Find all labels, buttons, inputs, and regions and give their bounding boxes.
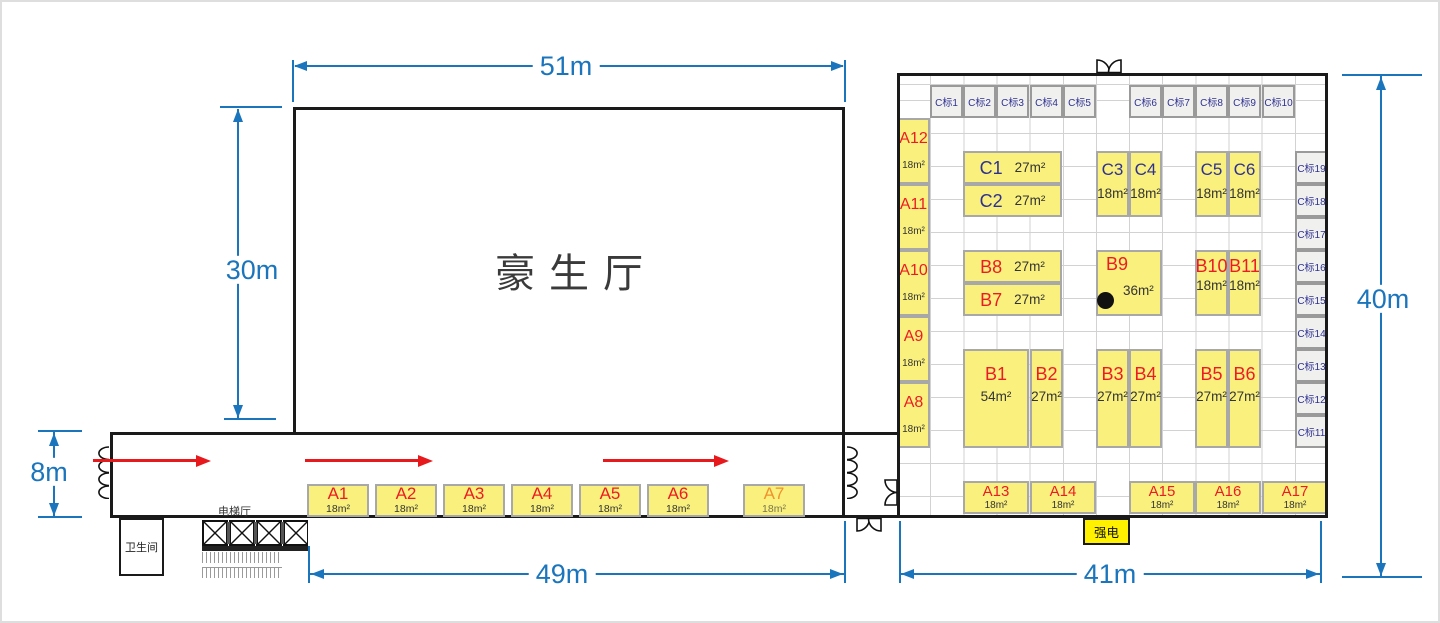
dim-arrowhead <box>233 109 243 122</box>
double-door-icon <box>1096 57 1122 73</box>
booth-area: 18m² <box>666 504 690 515</box>
dim-49m-tick-left <box>308 546 310 583</box>
booth-a1: A1 18m² <box>307 484 369 517</box>
booth-a3: A3 18m² <box>443 484 505 517</box>
booth-a7: A7 18m² <box>743 484 805 517</box>
hall-name: 豪生厅 <box>293 107 845 432</box>
dim-arrowhead <box>830 569 843 579</box>
booth-label: A1 <box>328 486 349 502</box>
restroom: 卫生间 <box>119 518 164 576</box>
door-swing-icon <box>846 446 860 499</box>
booth-a4: A4 18m² <box>511 484 573 517</box>
booth-a5: A5 18m² <box>579 484 641 517</box>
passage-divider-wall <box>842 432 845 518</box>
building-wall <box>897 73 1328 518</box>
double-door-icon <box>883 479 898 506</box>
elevator-lobby-label: 电梯厅 <box>218 503 251 519</box>
dim-arrowhead <box>1376 563 1386 576</box>
flow-arrow <box>603 459 715 462</box>
booth-label: A4 <box>532 486 553 502</box>
dim-arrowhead <box>831 61 844 71</box>
dim-arrowhead <box>311 569 324 579</box>
booth-label: A5 <box>600 486 621 502</box>
dim-8m-tick-bottom <box>38 516 82 518</box>
dim-arrowhead <box>49 503 59 516</box>
dim-arrowhead <box>901 569 914 579</box>
dim-8m-label: 8m <box>23 458 75 486</box>
dim-40m-line <box>1380 75 1382 578</box>
flow-arrow <box>305 459 419 462</box>
dim-49m-label: 49m <box>529 560 596 588</box>
booth-area: 18m² <box>762 504 786 515</box>
booth-label: A3 <box>464 486 485 502</box>
stairs-icon <box>202 552 282 578</box>
booth-label: A7 <box>764 486 785 502</box>
dim-arrowhead <box>1376 77 1386 90</box>
dim-51m-label: 51m <box>533 52 600 80</box>
booth-a6: A6 18m² <box>647 484 709 517</box>
booth-area: 18m² <box>598 504 622 515</box>
dim-40m-label: 40m <box>1350 285 1417 313</box>
power-box: 强电 <box>1083 518 1130 545</box>
dim-arrowhead <box>49 433 59 446</box>
dim-arrowhead <box>294 61 307 71</box>
dim-30m-label: 30m <box>219 256 286 284</box>
dim-41m-tick-right <box>1320 521 1322 583</box>
dim-40m-tick-bottom <box>1342 576 1422 578</box>
dim-49m-tick-right <box>844 521 846 583</box>
dim-41m-label: 41m <box>1077 560 1144 588</box>
booth-label: A6 <box>668 486 689 502</box>
booth-a2: A2 18m² <box>375 484 437 517</box>
dim-40m-tick-top <box>1342 74 1422 76</box>
stairs-mid-line <box>202 563 282 568</box>
flow-arrowhead <box>196 455 211 467</box>
power-label: 强电 <box>1094 522 1119 541</box>
dim-30m-tick-top <box>220 106 282 108</box>
dim-arrowhead <box>233 405 243 418</box>
booth-label: A2 <box>396 486 417 502</box>
floor-plan-canvas: 51m 30m 8m 49m 41m 40m 豪生厅 <box>0 0 1440 623</box>
dim-51m-tick-right <box>844 60 846 102</box>
double-door-icon <box>856 518 882 534</box>
booth-area: 18m² <box>462 504 486 515</box>
flow-arrowhead <box>418 455 433 467</box>
booth-area: 18m² <box>326 504 350 515</box>
flow-arrow <box>93 459 197 462</box>
flow-arrowhead <box>714 455 729 467</box>
booth-area: 18m² <box>530 504 554 515</box>
booth-area: 18m² <box>394 504 418 515</box>
door-swing-icon <box>96 446 110 499</box>
elevator-icon <box>202 520 308 551</box>
restroom-label: 卫生间 <box>125 539 158 555</box>
dim-arrowhead <box>1306 569 1319 579</box>
dim-30m-tick-bottom <box>224 418 276 420</box>
dim-8m-tick-top <box>38 430 82 432</box>
